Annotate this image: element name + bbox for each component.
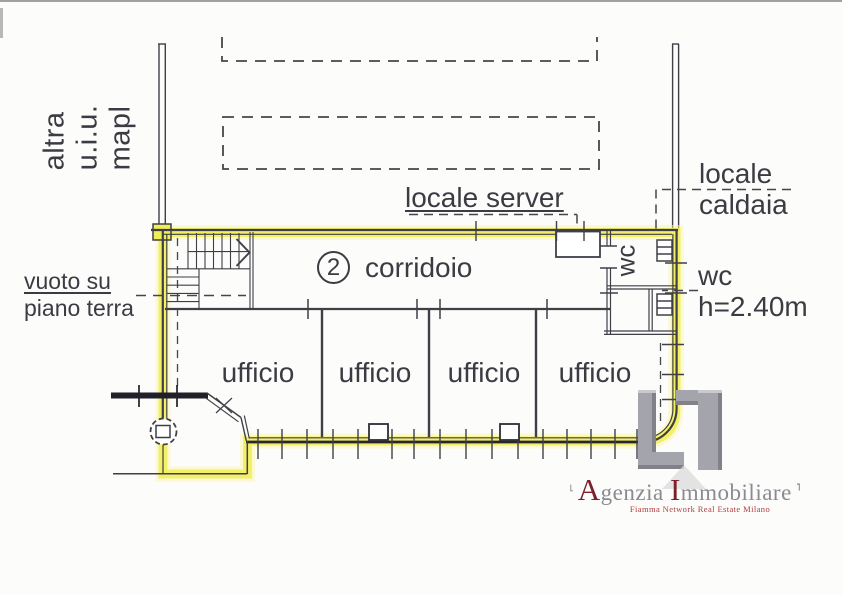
agency-logo-text: Agenzia Immobiliare [570,469,800,505]
scanned-floor-plan-page: altra u.i.u. mapl vuoto su piano terra l… [0,0,842,595]
boiler-label-line1: locale [699,158,788,189]
wc-room-label: wc [611,244,642,276]
agency-tagline: Fiamma Network Real Estate Milano [570,504,800,514]
agency-name-initial-2: I [670,472,681,507]
office-label-2: ufficio [315,357,435,389]
office-label-1: ufficio [198,357,318,389]
void-label-line1: vuoto su [24,268,134,295]
server-room-label: locale server [405,182,564,214]
left-unit-label-text: altra u.i.u. mapl [39,104,138,170]
wc-room-label-box: wc [604,234,648,286]
agency-name-rest-1: genzia [601,480,664,505]
server-room [556,232,600,258]
logo-bracket-right-icon [797,469,800,505]
boiler-room-label: locale caldaia [699,158,788,220]
agency-name-initial-1: A [578,472,601,507]
boiler-label-line2: caldaia [699,189,788,220]
wc-height-line1: wc [698,260,808,291]
corridor-label: corridoio [365,252,472,284]
unit-number-badge: 2 [317,251,350,284]
column-symbol [151,419,177,445]
agency-logo: Agenzia Immobiliare Fiamma Network Real … [570,383,800,523]
agency-name: Agenzia Immobiliare [578,474,792,505]
office-label-3: ufficio [424,357,544,389]
wc-height-line2: h=2.40m [698,291,808,322]
entrance-door [111,385,249,441]
void-ground-floor-label: vuoto su piano terra [24,268,134,322]
corridor-wall [165,299,610,319]
left-unit-label: altra u.i.u. mapl [70,30,106,244]
agency-logo-icon [636,388,724,476]
agency-name-rest-2: mmobiliare [681,480,792,505]
dashed-areas [222,37,599,169]
void-label-line2: piano terra [24,295,134,322]
wc-height-label: wc h=2.40m [698,260,808,322]
stairs [167,232,253,310]
logo-bracket-left-icon [570,471,573,505]
